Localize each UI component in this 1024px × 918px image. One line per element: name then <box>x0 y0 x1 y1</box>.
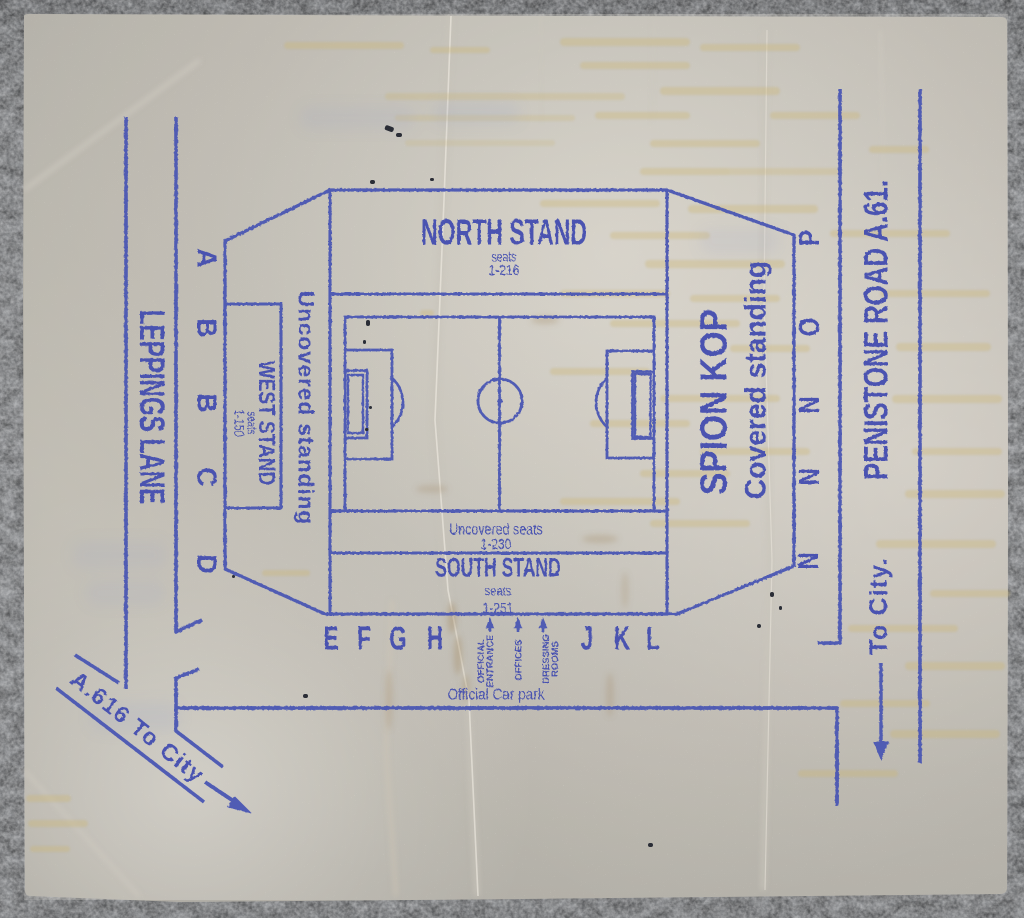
svg-text:B: B <box>191 393 223 412</box>
svg-text:Uncovered standing: Uncovered standing <box>294 291 319 525</box>
svg-text:E: E <box>324 619 339 656</box>
svg-text:1-150: 1-150 <box>231 409 246 437</box>
svg-text:B: B <box>191 318 223 337</box>
svg-text:PENISTONE ROAD A.61.: PENISTONE ROAD A.61. <box>858 180 895 480</box>
svg-text:Covered standing: Covered standing <box>740 261 773 499</box>
svg-text:seats: seats <box>485 583 512 598</box>
svg-text:O: O <box>793 318 826 337</box>
svg-text:C: C <box>191 467 223 486</box>
svg-text:N: N <box>792 552 825 569</box>
svg-text:LEPPINGS LANE: LEPPINGS LANE <box>132 310 170 504</box>
svg-text:P: P <box>793 230 826 246</box>
svg-text:To City.: To City. <box>865 557 893 655</box>
svg-text:DRESSINGROOMS: DRESSINGROOMS <box>540 634 560 684</box>
svg-text:G: G <box>389 619 406 656</box>
svg-text:1-230: 1-230 <box>481 536 512 553</box>
svg-text:OFFICIALENTRANCE: OFFICIALENTRANCE <box>475 635 495 688</box>
svg-text:1-251: 1-251 <box>483 600 514 617</box>
svg-text:H: H <box>427 619 443 656</box>
svg-text:OFFICES: OFFICES <box>514 639 525 680</box>
svg-text:A: A <box>191 248 223 267</box>
svg-text:L: L <box>646 619 660 656</box>
svg-text:J: J <box>581 619 593 656</box>
svg-text:SPION KOP: SPION KOP <box>693 309 735 495</box>
svg-text:1-216: 1-216 <box>489 262 520 279</box>
svg-text:K: K <box>614 619 631 656</box>
svg-text:Official Car park: Official Car park <box>447 686 545 703</box>
svg-text:N: N <box>793 396 826 413</box>
svg-text:D: D <box>191 554 223 573</box>
svg-text:SOUTH STAND: SOUTH STAND <box>435 552 560 583</box>
svg-text:N: N <box>793 468 826 485</box>
svg-text:NORTH STAND: NORTH STAND <box>421 213 587 252</box>
svg-text:F: F <box>357 619 371 656</box>
